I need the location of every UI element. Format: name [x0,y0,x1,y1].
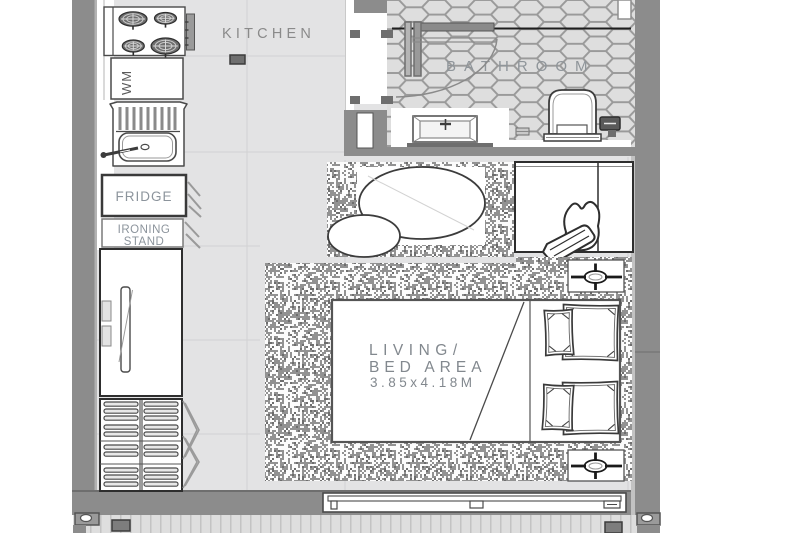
svg-text:IRONING: IRONING [118,224,171,236]
svg-text:LIVING/: LIVING/ [369,342,463,359]
svg-text:BATHROOM: BATHROOM [446,58,596,75]
svg-text:BED AREA: BED AREA [369,359,487,376]
svg-text:WM: WM [119,70,134,95]
svg-text:3.85x4.18M: 3.85x4.18M [370,375,476,390]
svg-text:STAND: STAND [124,236,165,248]
svg-text:KITCHEN: KITCHEN [222,26,315,42]
svg-text:FRIDGE: FRIDGE [115,189,172,204]
